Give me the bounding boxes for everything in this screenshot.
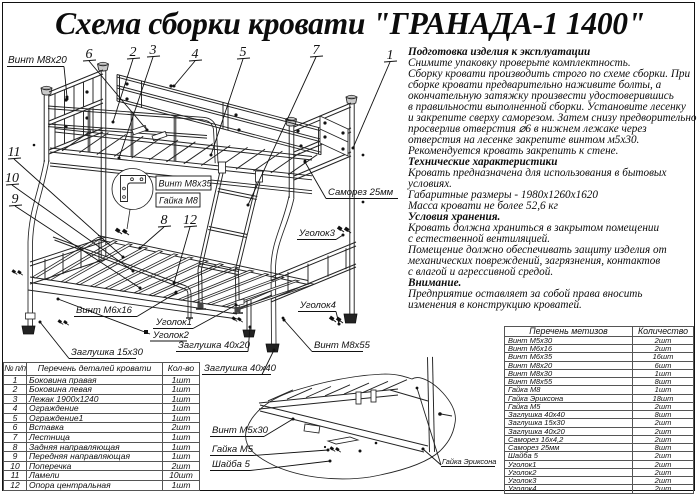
svg-text:4: 4 (192, 47, 199, 62)
svg-text:Уголок4: Уголок4 (299, 300, 336, 311)
svg-text:Заглушка 40х20: Заглушка 40х20 (178, 340, 251, 351)
svg-text:Винт М8х20: Винт М8х20 (8, 55, 67, 66)
svg-text:Уголок1: Уголок1 (155, 317, 192, 328)
svg-text:Винт М5х30: Винт М5х30 (212, 425, 269, 436)
svg-text:Винт М8х35: Винт М8х35 (159, 179, 213, 189)
svg-text:1: 1 (387, 48, 394, 63)
svg-text:5: 5 (240, 45, 247, 60)
svg-text:Гайка М5: Гайка М5 (212, 444, 254, 455)
svg-text:7: 7 (313, 43, 321, 58)
svg-text:6: 6 (86, 47, 93, 62)
svg-text:2: 2 (130, 45, 137, 60)
svg-text:9: 9 (12, 192, 19, 207)
svg-text:Заглушка 40х40: Заглушка 40х40 (204, 363, 277, 374)
svg-text:Заглушка 15х30: Заглушка 15х30 (71, 347, 144, 358)
svg-text:Шайба 5: Шайба 5 (212, 459, 251, 470)
svg-text:3: 3 (149, 43, 157, 58)
svg-text:Уголок3: Уголок3 (298, 228, 336, 239)
svg-text:Саморез 25мм: Саморез 25мм (328, 187, 394, 198)
svg-text:Гайка Эриксона: Гайка Эриксона (442, 457, 496, 466)
svg-text:8: 8 (161, 213, 168, 228)
svg-text:Винт М8х55: Винт М8х55 (314, 340, 371, 351)
svg-text:Гайка М8: Гайка М8 (159, 196, 198, 206)
svg-text:Винт М6х16: Винт М6х16 (76, 305, 133, 316)
